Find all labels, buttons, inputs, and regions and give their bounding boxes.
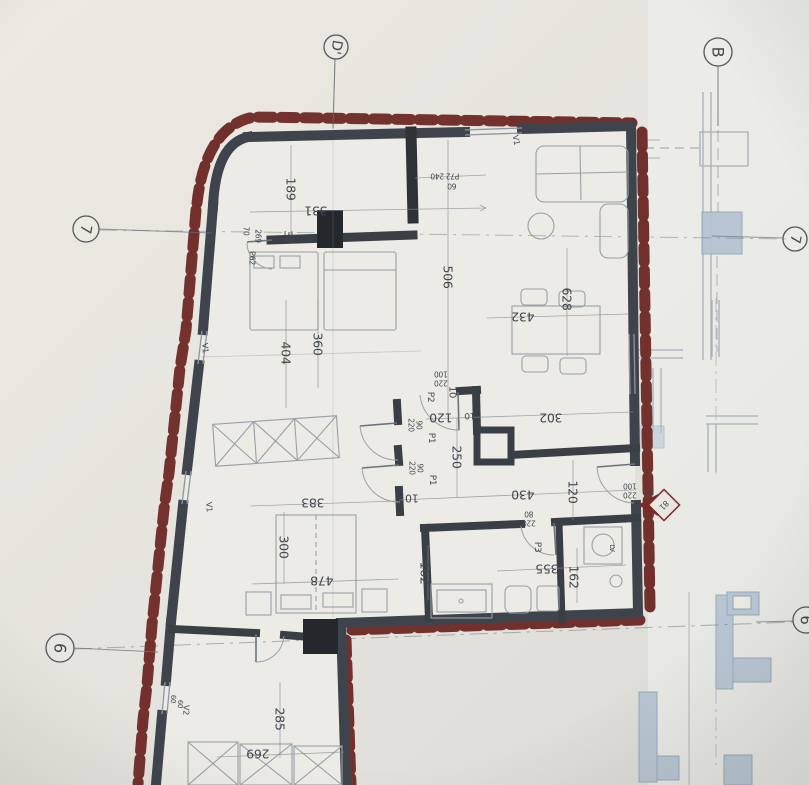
dim-label: 162 xyxy=(418,562,433,585)
dim-label: 10 xyxy=(464,410,475,420)
dim-label: 60 xyxy=(169,695,177,704)
dim-label: 100 xyxy=(434,370,448,379)
dim-label: P72 240 xyxy=(430,172,459,181)
dim-label: 220 xyxy=(434,379,448,388)
dim-label: 302 xyxy=(540,411,563,426)
dim-label: P2 xyxy=(425,392,435,403)
dim-label: 506 xyxy=(441,266,456,289)
dim-label: 360 xyxy=(311,333,326,356)
dim-label: P2 xyxy=(644,486,655,496)
dim-label: 70 xyxy=(242,227,251,236)
dim-label: 430 xyxy=(511,488,534,503)
dim-label: 60 xyxy=(447,182,456,191)
dim-label: 300 xyxy=(277,536,292,559)
dim-label: 220 xyxy=(407,418,416,432)
dim-label: 100 xyxy=(623,482,637,491)
dim-label: 60 xyxy=(176,700,184,709)
duct-shaft xyxy=(477,430,511,462)
svg-text:6: 6 xyxy=(797,615,809,626)
floor-plan-photo: 18933137P6270269P72 24060V15066284324043… xyxy=(0,0,809,785)
dim-label: 220 xyxy=(522,519,536,528)
floor-plan-sheet: 18933137P6270269P72 24060V15066284324043… xyxy=(0,0,809,785)
dim-label: V1 xyxy=(511,134,522,146)
dim-label: 80 xyxy=(524,510,533,519)
dim-label: 90 xyxy=(415,421,424,430)
svg-text:B: B xyxy=(709,47,728,58)
dim-label: 220 xyxy=(623,491,637,500)
dim-label: 120 xyxy=(429,411,452,426)
dim-label: 404 xyxy=(279,342,294,365)
svg-text:D': D' xyxy=(327,39,345,56)
dim-label: 269 xyxy=(246,747,269,762)
dim-label: 432 xyxy=(512,310,535,325)
dim-label: 250 xyxy=(450,446,465,469)
dim-label: P3 xyxy=(532,542,542,553)
dim-label: 10 xyxy=(405,492,419,505)
dim-label: 355 xyxy=(536,562,559,577)
dim-label: 120 xyxy=(566,481,581,504)
svg-text:6: 6 xyxy=(50,642,70,654)
dim-label: 269 xyxy=(254,229,263,243)
dim-label: P1 xyxy=(426,433,436,444)
dim-label: LV xyxy=(608,544,616,552)
corner-block xyxy=(303,619,338,654)
dim-label: 162 xyxy=(567,566,582,589)
dim-label: 331 xyxy=(305,204,328,219)
dim-label: V1 xyxy=(200,343,210,354)
dim-label: 478 xyxy=(310,574,333,589)
dim-label: 10 xyxy=(447,386,458,398)
dim-label: 189 xyxy=(284,178,299,201)
dim-label: P1 xyxy=(427,475,437,486)
dim-label: 383 xyxy=(302,496,325,511)
dim-label: 90 xyxy=(416,464,425,473)
dim-label: 220 xyxy=(408,461,417,475)
dim-label: 285 xyxy=(273,708,288,731)
dim-label: V1 xyxy=(204,502,214,513)
dim-label: P62 xyxy=(248,251,257,265)
dim-label: 628 xyxy=(560,288,575,311)
dim-label: 37 xyxy=(282,230,295,244)
